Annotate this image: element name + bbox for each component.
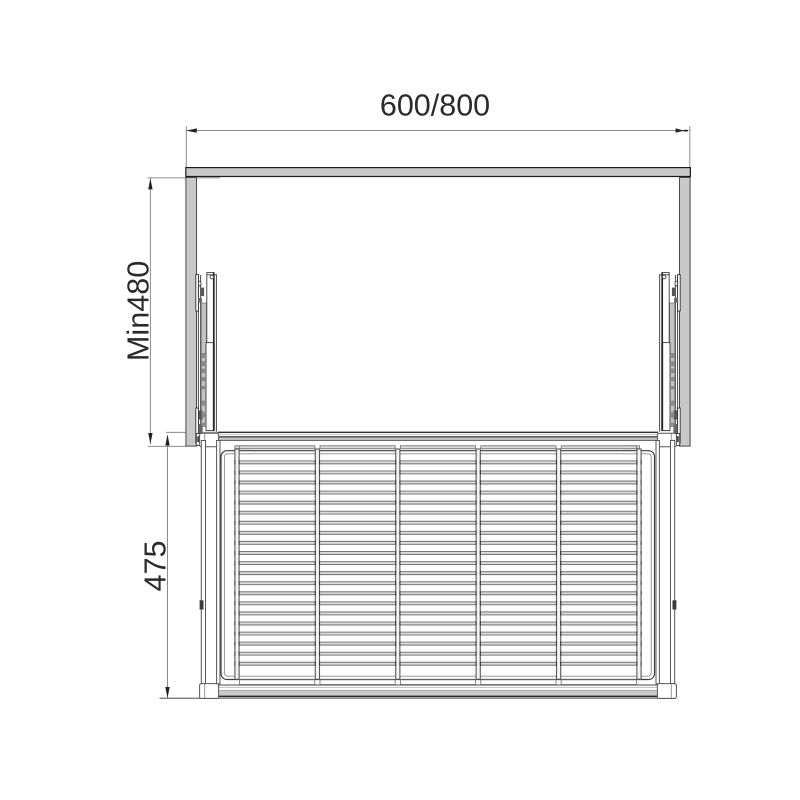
svg-text:Min480: Min480 xyxy=(122,261,156,361)
svg-text:475: 475 xyxy=(139,540,173,591)
svg-text:600/800: 600/800 xyxy=(380,89,490,123)
